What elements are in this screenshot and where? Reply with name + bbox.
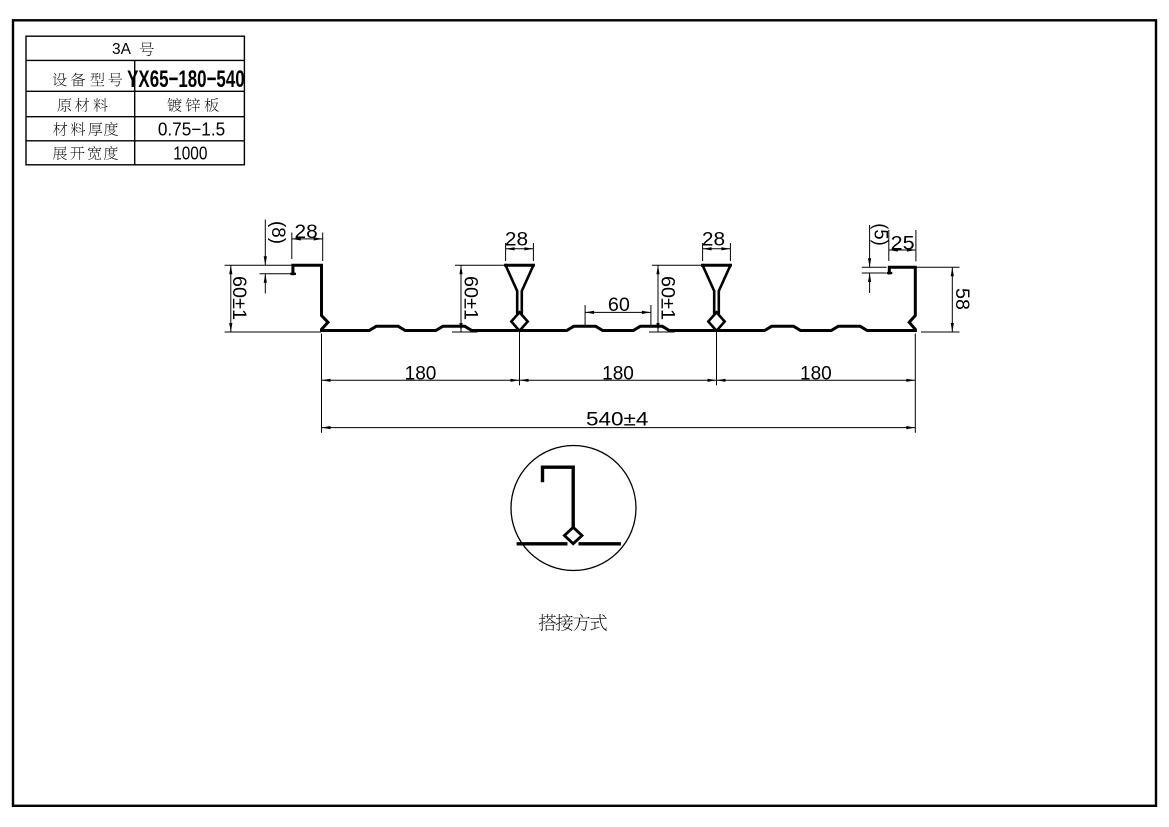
svg-text:28: 28 <box>505 230 528 251</box>
svg-text:58: 58 <box>951 288 972 310</box>
svg-text:3A: 3A <box>112 41 132 58</box>
svg-text:60±1: 60±1 <box>460 276 481 320</box>
svg-text:540±4: 540±4 <box>586 410 649 431</box>
svg-text:180: 180 <box>800 364 832 385</box>
svg-text:28: 28 <box>295 222 318 243</box>
svg-text:25: 25 <box>891 233 915 254</box>
svg-text:(8): (8) <box>267 221 288 244</box>
svg-text:0.75−1.5: 0.75−1.5 <box>158 118 225 139</box>
svg-text:60±1: 60±1 <box>657 276 678 320</box>
svg-text:1000: 1000 <box>173 142 207 163</box>
svg-text:60: 60 <box>608 295 630 316</box>
svg-text:180: 180 <box>405 364 437 385</box>
svg-text:28: 28 <box>702 230 725 251</box>
svg-text:(5): (5) <box>869 223 890 246</box>
svg-text:60±1: 60±1 <box>228 276 249 320</box>
svg-text:180: 180 <box>602 364 634 385</box>
svg-text:YX65−180−540: YX65−180−540 <box>127 66 245 93</box>
